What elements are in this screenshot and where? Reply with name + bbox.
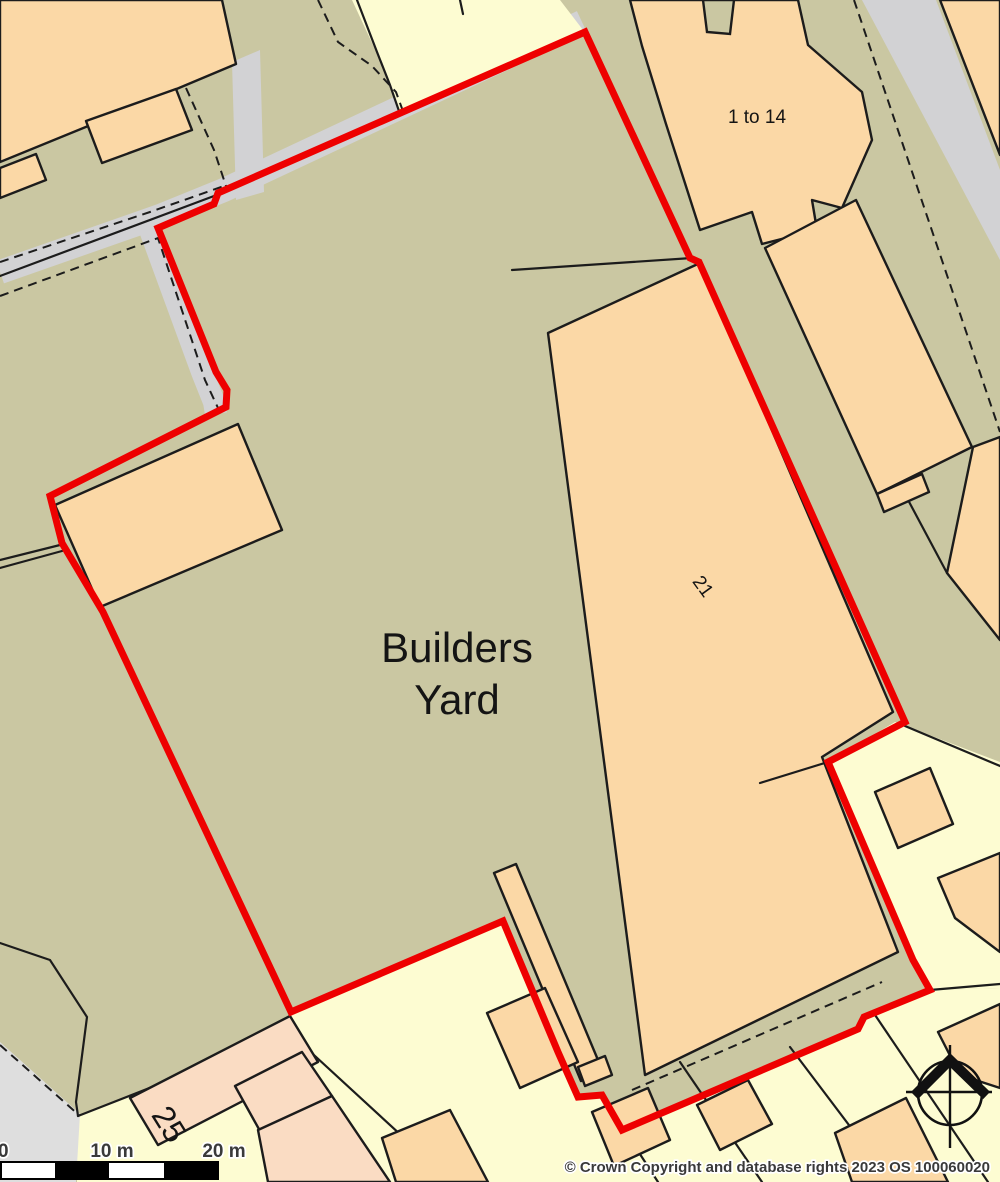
label-1-to-14: 1 to 14 [728,107,787,128]
copyright-text: © Crown Copyright and database rights 20… [565,1159,990,1176]
label-builders-yard-line1: Builders [381,624,533,671]
map-canvas: Builders Yard 1 to 14 21 25 0 10 m 20 m … [0,0,1000,1182]
scale-tick-10: 10 m [90,1141,133,1162]
scale-tick-20: 20 m [202,1141,245,1162]
scale-tick-0: 0 [0,1141,9,1162]
site-plan-map: Builders Yard 1 to 14 21 25 0 10 m 20 m … [0,0,1000,1182]
label-builders-yard-line2: Yard [414,676,500,723]
building-1-to-14-notch [703,0,734,34]
